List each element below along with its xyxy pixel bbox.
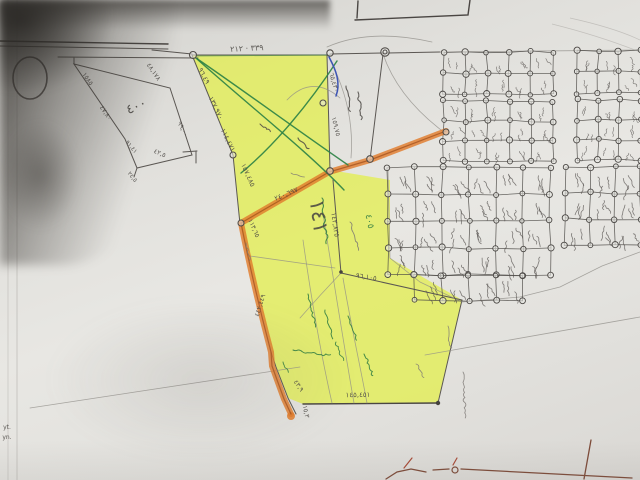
annotation-pentagon-area-figure: ٤٠٠ — [124, 96, 149, 118]
annotation-edge-fragment-1: yt. — [3, 424, 11, 431]
pentagon-parcel — [74, 58, 197, 177]
annotation-top-edge-dimension: ٣٣٩ · ٢١٢ — [230, 43, 264, 54]
annotation-pentagon-edge-1: ١٥٨٥ — [80, 71, 95, 87]
annotation-edge-fragment-2: yn. — [2, 434, 11, 441]
photo-of-survey-map: ٣٣٩ · ٢١٢٩٦,٤٩١٣٧,٩٧٠١١٤,٤٧١١٥٧,٤٨٥٦٥,٤٣… — [0, 0, 640, 480]
top-rectangle-sketch — [327, 0, 470, 47]
annotation-pentagon-edge-3: ٤٨,١٧٨ — [145, 62, 163, 83]
drawn-ellipse — [13, 57, 47, 99]
annotation-parcel-number: ١٤١ — [305, 198, 333, 235]
paper-fold-lines — [8, 0, 17, 480]
annotation-bottom-edge-dimension: ١٤٥,٤٥١ — [345, 391, 370, 399]
annotation-right-edge-dimension-1: ٦٥,٤٣٠ — [327, 72, 340, 93]
bottom-sketch — [386, 440, 632, 479]
annotation-pentagon-edge-5: ٤٢,٥ — [152, 147, 167, 160]
survey-map-drawing: ٣٣٩ · ٢١٢٩٦,٤٩١٣٧,٩٧٠١١٤,٤٧١١٥٧,٤٨٥٦٥,٤٣… — [0, 0, 640, 480]
parcel-grid — [384, 47, 640, 306]
annotation-pentagon-edge-4: ٩٩,٠٠ — [175, 120, 190, 138]
annotation-right-edge-dimension-2: ١٥٩,٧٥ — [330, 116, 343, 137]
annotation-jog-dimension-2: ١٥,٣ — [301, 405, 312, 419]
annotation-pentagon-tail-figure: ٢٤,٥ — [126, 170, 139, 183]
